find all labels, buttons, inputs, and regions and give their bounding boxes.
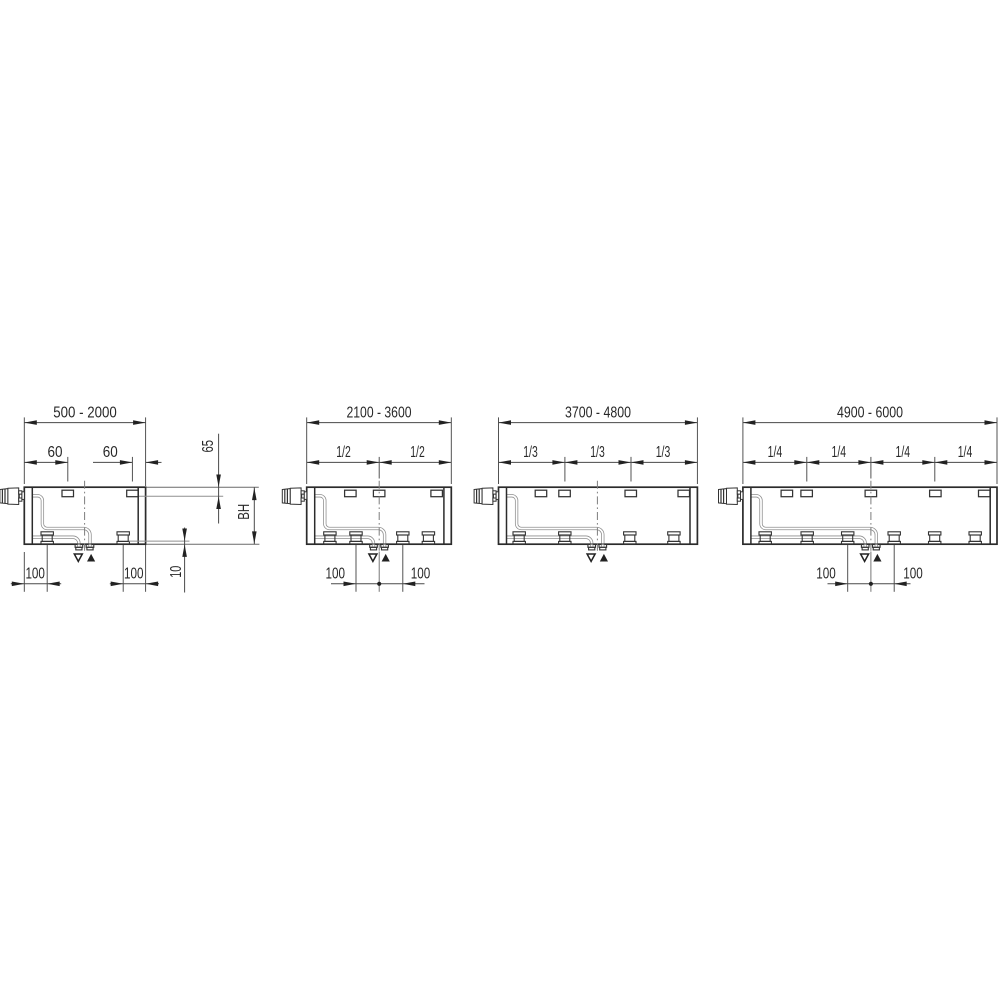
svg-text:1/3: 1/3 xyxy=(656,444,671,461)
svg-text:100: 100 xyxy=(411,566,431,583)
svg-text:BH: BH xyxy=(236,504,253,520)
svg-text:1/2: 1/2 xyxy=(410,444,425,461)
svg-text:3700 - 4800: 3700 - 4800 xyxy=(565,405,631,422)
svg-text:500 - 2000: 500 - 2000 xyxy=(53,405,117,422)
svg-text:1/4: 1/4 xyxy=(768,444,783,461)
svg-text:1/3: 1/3 xyxy=(590,444,605,461)
svg-text:60: 60 xyxy=(103,444,118,461)
svg-text:65: 65 xyxy=(200,440,217,453)
svg-text:1/3: 1/3 xyxy=(523,444,538,461)
svg-text:1/4: 1/4 xyxy=(896,444,911,461)
svg-text:100: 100 xyxy=(326,566,346,583)
svg-text:1/4: 1/4 xyxy=(832,444,847,461)
svg-text:2100 - 3600: 2100 - 3600 xyxy=(347,405,412,422)
svg-text:100: 100 xyxy=(25,566,45,583)
svg-text:100: 100 xyxy=(124,566,144,583)
svg-text:60: 60 xyxy=(48,444,63,461)
svg-text:100: 100 xyxy=(816,566,836,583)
svg-text:4900 - 6000: 4900 - 6000 xyxy=(837,405,903,422)
svg-text:1/2: 1/2 xyxy=(336,444,351,461)
svg-text:100: 100 xyxy=(903,566,923,583)
svg-text:10: 10 xyxy=(168,566,185,578)
svg-text:1/4: 1/4 xyxy=(958,444,973,461)
